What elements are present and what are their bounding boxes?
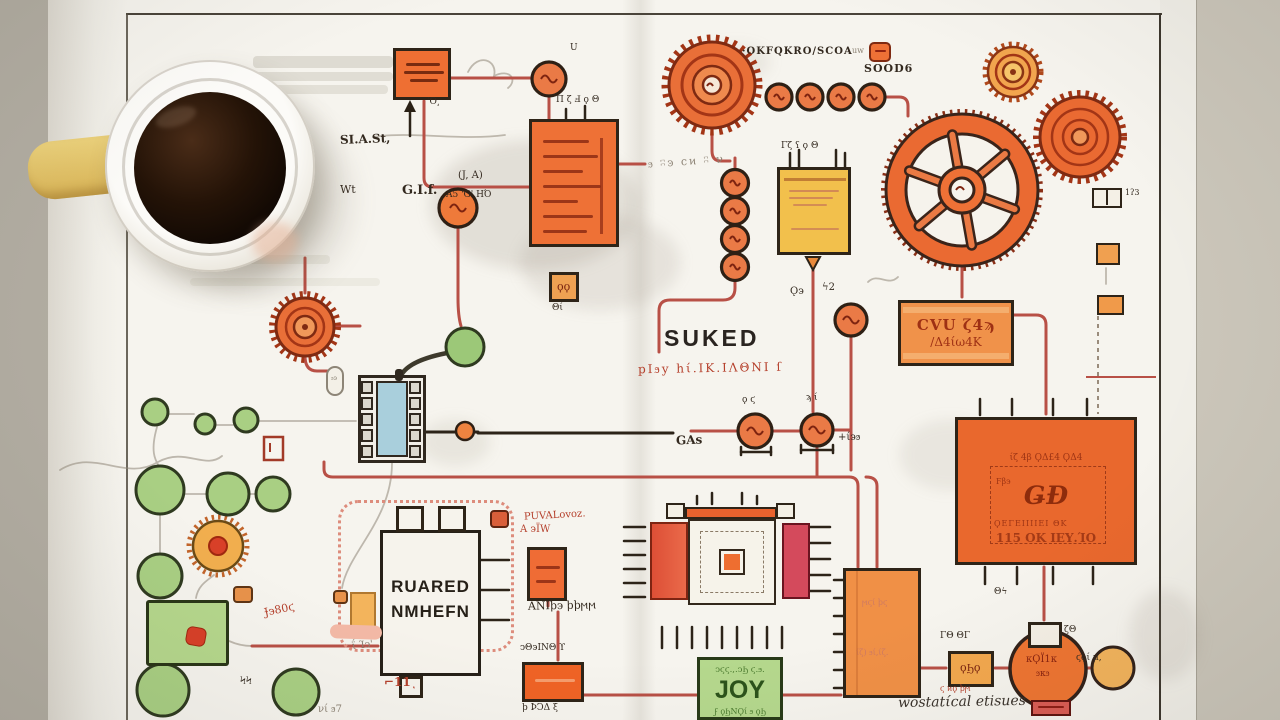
pinbox-label: ζΘ (1064, 626, 1076, 636)
gif-label: G.I.f. (402, 184, 437, 198)
a2w-label: A ϶ΪW (520, 524, 550, 535)
r2-red-label: ϛ ͷϙ ϸϻ (940, 685, 971, 694)
chip-title: ίζ 4β ϘΔ£4 ϘΔ4 (958, 454, 1134, 464)
cvu-line1: CVU ζ4ϡ (901, 317, 1011, 334)
gas-label: GAs (676, 434, 703, 448)
chip-bottom-text: 115 ΟΚ ΙΕΥ.ΊΟ (958, 532, 1134, 545)
photo-of-schematic: ϙϙ CVU ζ4ϡ /Δ4ίω4Κ ίζ 4β ϘΔ£4 ϘΔ4 Ϝβ϶ ǤƉ… (0, 0, 1280, 720)
green-plot-box (146, 600, 229, 666)
r1-text-2: ίζ) ϧί,ίζ. (856, 649, 888, 658)
orange-mini-box-2 (1097, 295, 1124, 315)
ram-pill: ϧ϶ (326, 366, 344, 396)
pump-top-pin-box (1028, 622, 1062, 648)
finger-smudge (252, 222, 298, 262)
orange-mini-box-1 (1096, 243, 1120, 265)
pump-bottom-red-box (1031, 700, 1071, 716)
ruared-top-pin-2 (438, 506, 466, 532)
suked-sub-label: pΙϧy hί.ΙΚ.ΙΛΘΝΙ ſ (638, 361, 783, 377)
r3-right-label: ϛϙί μ, (1076, 654, 1102, 664)
gear-icon-small-yellow (985, 44, 1041, 100)
chip-center-mark: ǤƉ (958, 482, 1134, 510)
blue-ic-box (358, 375, 426, 463)
r2-inner-mark: ϙϦϙ (960, 662, 981, 674)
ruared-top-pin-1 (396, 506, 424, 532)
yellow-register-box (777, 167, 851, 255)
ram-pill-label: ϧ϶ (331, 376, 337, 383)
ic-right-crimson-block (782, 523, 810, 599)
process-box-top-left (393, 48, 451, 100)
cvu-label-box: CVU ζ4ϡ /Δ4ίω4Κ (898, 300, 1014, 366)
node2-top-label: ϡ ί (806, 394, 818, 404)
gear-icon-left (272, 294, 338, 360)
ot-label: Θί (552, 304, 563, 314)
deg13-label: ΐ Ίͻ' (351, 639, 373, 652)
ic-die (719, 549, 745, 575)
yellow-pins-label: Γζ ʕ ϙ Θ (781, 142, 818, 152)
ic-corner-pin-right (776, 503, 795, 519)
connector-box-small: ϙϙ (549, 272, 579, 302)
ani-label: ANΙϸ϶ ϸϸϻϻ (528, 599, 596, 612)
ic-left-red-block (650, 522, 688, 600)
gplus-label: Ǫ϶ (790, 286, 804, 297)
ruared-box: RUARED NMHEFN (380, 530, 481, 676)
soods-icon (869, 42, 891, 62)
blue-ic-core (376, 381, 408, 457)
b-pins-label: Π ζ Ⅎ ϙ Θ (556, 96, 599, 106)
r3-inner2-label: ϧκϧ (1036, 670, 1050, 680)
red-outline-square (264, 437, 283, 460)
u-mark-label: U (570, 44, 578, 54)
ic-top-bar (685, 507, 777, 519)
joy-main-text: JOY (700, 677, 780, 705)
ic-corner-pin-left (666, 503, 685, 519)
triangle-pin-icon (806, 257, 820, 270)
ja-label: (J, A) (458, 170, 483, 181)
tall-orange-box: ϻϛί ϸϛ ίζ) ϧί,ίζ. (843, 568, 921, 698)
small-component-box-r2: ϙϦϙ (948, 651, 994, 687)
soods-label: SOOD6 (864, 63, 913, 75)
arrow-up-icon (404, 100, 416, 112)
pp-label: ϞϞ (240, 676, 252, 687)
gear-icon-top-right (1036, 93, 1124, 181)
r2-top-label: ΓΘ ΘΓ (940, 632, 970, 642)
pink-arrow (330, 624, 382, 640)
main-chip-box: ίζ 4β ϘΔ£4 ϘΔ4 Ϝβ϶ ǤƉ ϘΕΓΕΙΙΙΙΕΙ ΘΚ 115 … (955, 417, 1137, 565)
wostat-label: wostatίcal etisues (898, 694, 1026, 712)
process-box-main-left (529, 119, 619, 247)
component-box-o2 (522, 662, 584, 702)
osc-title-label: ·OKFQKRO/SCOA (742, 46, 853, 57)
onetwothree-label: 1ʔ3 (1125, 189, 1139, 198)
o-mark-label: 'O͵ (427, 98, 439, 108)
cvu-line2: /Δ4ίω4Κ (901, 336, 1011, 349)
chip-row-text: ϘΕΓΕΙΙΙΙΕΙ ΘΚ (994, 520, 1068, 529)
o2-bottom-label: ϸ ϷϽΔ ξ (522, 704, 558, 714)
joy-top-text: ͻϛϛ.,.ͻϦ ϛ.ϧ. (700, 666, 780, 675)
red-blob (185, 625, 208, 647)
orange-node-small-a (333, 590, 348, 604)
w1-pin-red-label: ⌐11ͺ (384, 676, 417, 689)
white-split-box (1092, 188, 1122, 208)
connector-box-dots: ϙϙ (557, 281, 570, 293)
r1-text-1: ϻϛί ϸϛ (862, 599, 887, 608)
a5-label: A5 'G' ΗΌ (446, 191, 491, 201)
orange-node-small-b (233, 586, 253, 603)
ruared-line1: RUARED (383, 578, 478, 597)
chip-below-label: Θϟ (994, 588, 1007, 598)
orange-square-top (490, 510, 509, 528)
hash2-label: ϟ2 (822, 282, 835, 293)
component-box-o1 (527, 547, 567, 601)
o2-top-label: ͻΘ϶ΙΝΘ ϒ (520, 644, 565, 654)
node1-top-label: ϙ ϛ (742, 396, 755, 406)
ic-center-package (688, 519, 776, 605)
osc-badge-label: uw (852, 47, 864, 56)
joy-box: ͻϛϛ.,.ͻϦ ϛ.ϧ. JOY ϝ ϙϦΝϘί ϧ ϙϦ (697, 657, 783, 720)
vr57-label: νί ϧ7 (318, 704, 342, 715)
plus34-label: +ί϶ϧ (838, 432, 860, 443)
joy-bottom-text: ϝ ϙϦΝϘί ϧ ϙϦ (700, 708, 780, 717)
coffee-liquid (134, 92, 286, 244)
suked-label: SUKED (664, 326, 760, 351)
ruared-line2: NMHEFN (383, 603, 478, 622)
blue-ic-top-nub (395, 369, 403, 381)
spoked-wheel-icon (883, 111, 1041, 269)
r3-inner1-label: κϘΪ1κ (1026, 654, 1057, 665)
sun-gear-icon (189, 517, 247, 575)
node-circles (439, 62, 885, 448)
